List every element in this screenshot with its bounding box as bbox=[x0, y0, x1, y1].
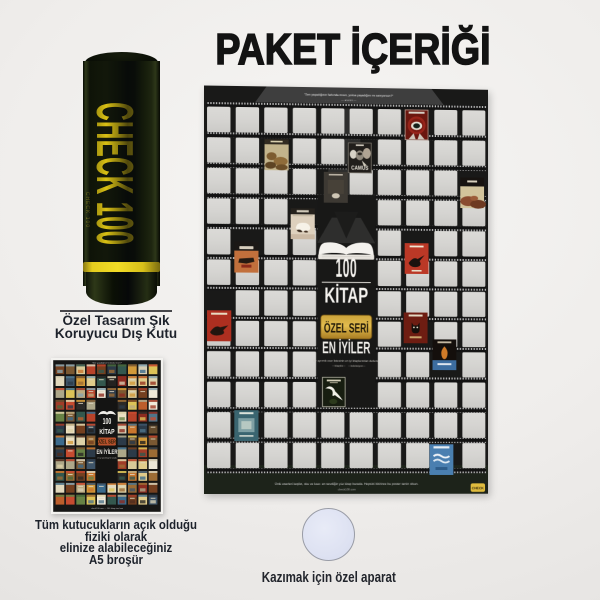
svg-text:check100.com — 100 kitap özel: check100.com — 100 kitap özel seri bbox=[91, 507, 124, 510]
svg-text:CHECK: CHECK bbox=[472, 486, 484, 490]
svg-text:EN İYİLER: EN İYİLER bbox=[96, 448, 117, 456]
svg-text:100: 100 bbox=[103, 418, 112, 426]
svg-text:Bir ayrıntılı eser listesinin: Bir ayrıntılı eser listesinin en iyi kit… bbox=[313, 359, 379, 363]
svg-text:EN İYİLER: EN İYİLER bbox=[322, 338, 370, 357]
svg-text:Ünlü eserleri keşfet, oku ve k: Ünlü eserleri keşfet, oku ve kazı: en se… bbox=[275, 482, 419, 486]
svg-text:check100.com: check100.com bbox=[338, 487, 357, 491]
svg-text:— anonim —: — anonim — bbox=[341, 99, 357, 102]
svg-text:100: 100 bbox=[335, 253, 357, 283]
svg-text:CAMUS: CAMUS bbox=[351, 165, 368, 172]
svg-text:—kitaplık—: —kitaplık— bbox=[332, 365, 346, 368]
svg-text:ÖZEL SERİ: ÖZEL SERİ bbox=[97, 438, 117, 445]
svg-text:—koleksiyon—: —koleksiyon— bbox=[348, 365, 366, 368]
svg-text:"Sen yaşadığının farkında mısı: "Sen yaşadığının farkında mısın?" bbox=[92, 361, 123, 364]
svg-text:ÖZEL SERİ: ÖZEL SERİ bbox=[324, 320, 369, 335]
svg-text:KİTAP: KİTAP bbox=[324, 283, 368, 308]
svg-text:KİTAP: KİTAP bbox=[99, 427, 115, 436]
svg-text:en iyi yüz kitap bir arada: en iyi yüz kitap bir arada bbox=[97, 457, 116, 460]
